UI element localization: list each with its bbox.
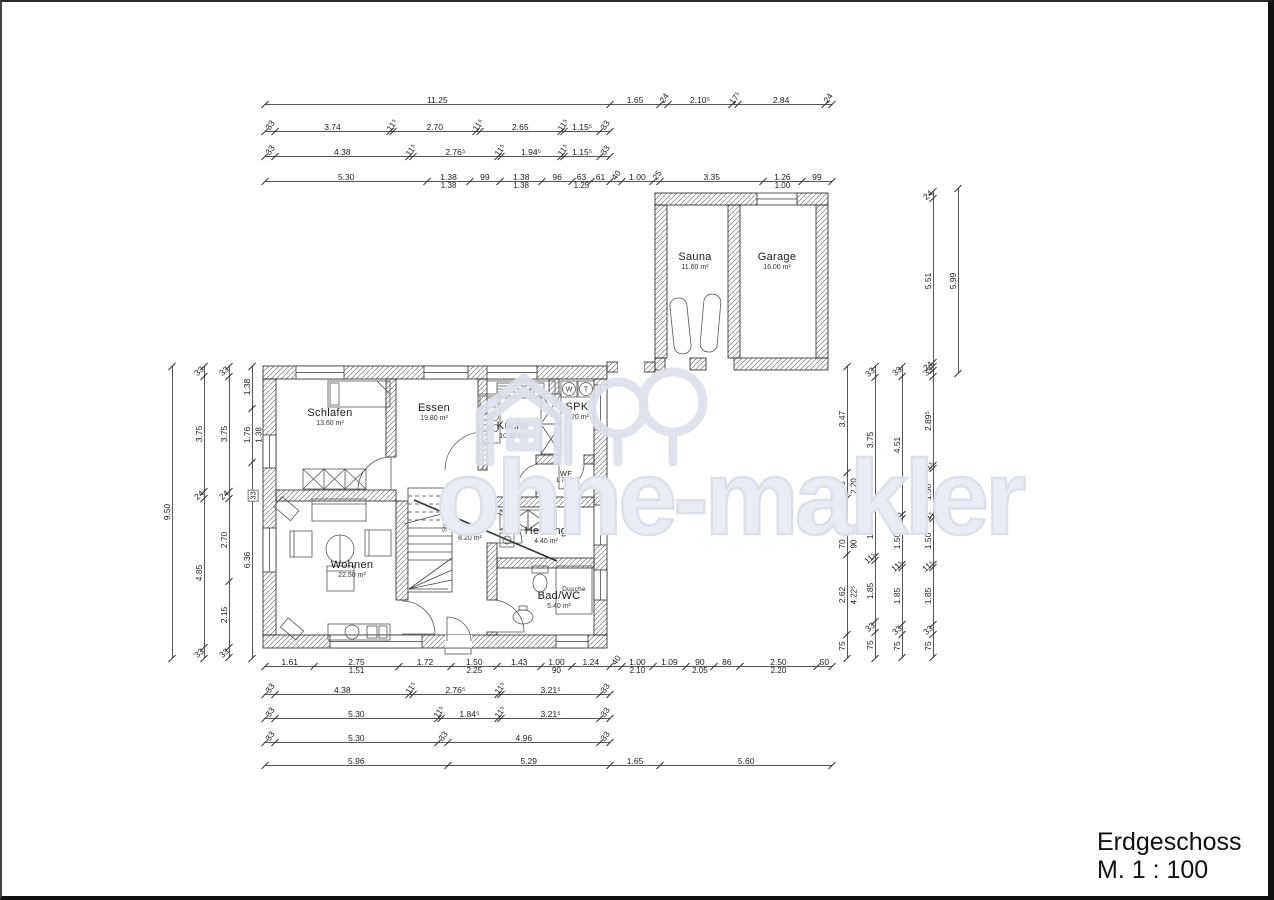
dim-chain-left-3: 333.75242.702.1533 <box>217 366 239 658</box>
wall-thickness-note: 33 <box>248 489 259 501</box>
room-label-schlafen: Schlafen13.60 m² <box>307 407 352 429</box>
dim-chain-left-4: 1.381.761.386.36 <box>240 366 262 658</box>
dim-chain-right-2: 333.7511⁵1.5011⁵1.853375 <box>863 366 885 658</box>
dim-chain-top-4: 5.301.381.38991.381.3896631.2561401.0025… <box>265 169 832 191</box>
room-label-essen: Essen19.80 m² <box>418 402 450 424</box>
dim-chain-right-3: 334.5111⁵1.5011⁵1.853375 <box>890 366 912 658</box>
dim-chain-bottom-1: 1.612.751.511.721.502.251.431.00901.2440… <box>265 654 832 676</box>
dim-chain-garage-2: 5.99 <box>946 188 968 373</box>
dryer-letter: T <box>584 387 589 394</box>
floor-title: Erdgeschoss <box>1097 829 1242 857</box>
dim-chain-bottom-5: 5.965.291.655.60 <box>265 753 832 775</box>
room-label-flur: Flur8.20 m² <box>458 522 482 544</box>
dim-chain-bottom-2: 334.3811⁵2.76⁵11⁵3.21⁵33 <box>265 682 610 704</box>
washer-letter: W <box>566 387 573 394</box>
room-label-heizung: Heizung4.40 m² <box>525 525 567 547</box>
dim-chain-right-4: 332.89⁵11⁵1.5011⁵1.5011⁵1.853375 <box>921 366 943 658</box>
scale-label: M. 1 : 100 <box>1097 857 1242 885</box>
dim-chain-left-2: 333.75244.8533 <box>192 366 214 658</box>
dim-chain-top-3: 334.3811⁵2.76⁵11⁵1.94⁵11⁵1.15⁵33 <box>265 144 610 166</box>
room-label-kueche: Küche10.90 m² <box>497 420 530 442</box>
room-label-garage: Garage16.00 m² <box>758 251 797 273</box>
dim-chain-bottom-4: 335.30334.9633 <box>265 730 610 752</box>
stair-note: Stg. <box>442 522 448 533</box>
title-block: Erdgeschoss M. 1 : 100 <box>1097 829 1242 884</box>
room-label-wohnen: Wohnen22.50 m² <box>331 559 374 581</box>
dim-chain-garage-1: 245.5124 <box>921 191 943 370</box>
floorplan-canvas: W T Sauna11.60 m² Garage16.00 m² Schlafe… <box>0 0 1274 900</box>
dim-chain-top-1: 11.251.65242.10⁵17⁵2.8424 <box>265 92 832 114</box>
room-label-dusche: Dusche <box>562 586 586 594</box>
furniture <box>274 293 722 640</box>
dim-chain-right-1: 3.47852.201.1170902.624.22⁵75 <box>835 366 857 658</box>
dim-chain-top-2: 333.7411⁵2.7011⁵2.6511⁵1.15⁵33 <box>265 119 610 141</box>
room-label-spk: SPK3.20 m² <box>565 401 589 423</box>
dim-chain-left-1: 9.50 <box>160 366 182 658</box>
room-label-wf: WF1.70 m² <box>556 469 576 485</box>
dim-chain-bottom-3: 335.3011⁵1.84⁵11⁵3.21⁵33 <box>265 706 610 728</box>
room-label-sauna: Sauna11.60 m² <box>678 251 711 273</box>
